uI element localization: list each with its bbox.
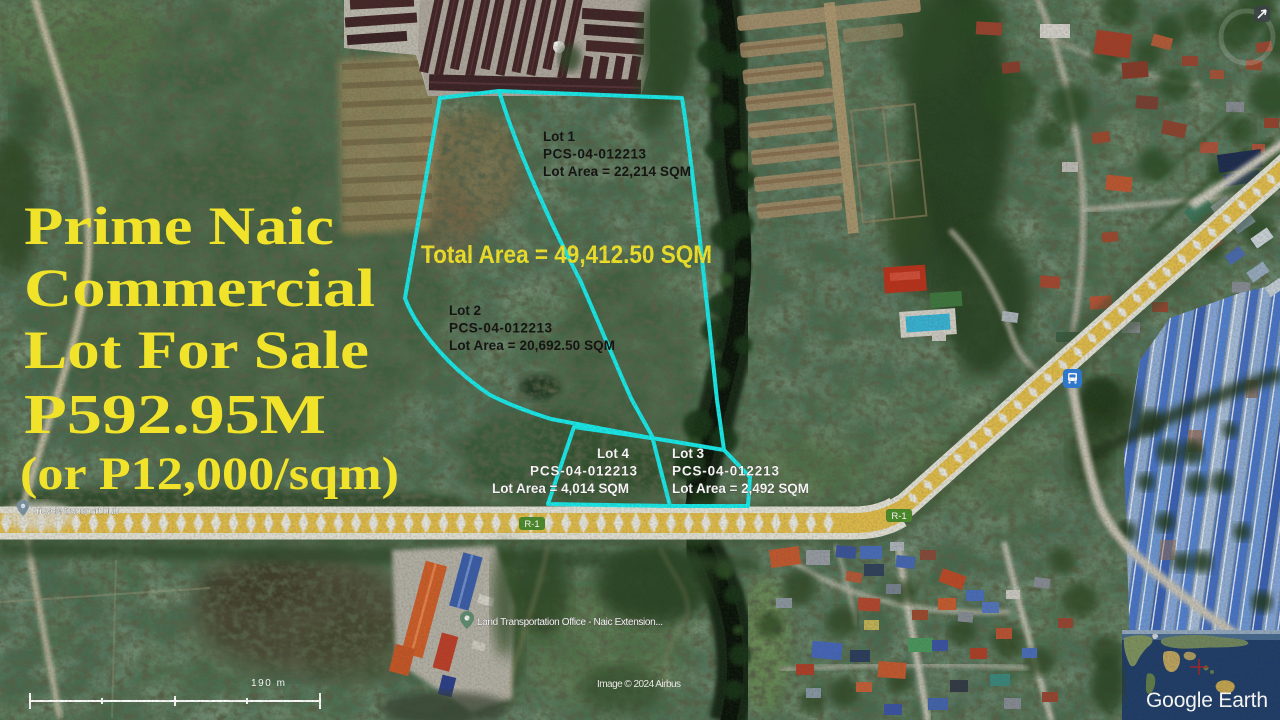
svg-text:Prime Naic: Prime Naic — [24, 196, 334, 256]
svg-text:Lot For Sale: Lot For Sale — [24, 320, 369, 380]
svg-text:P592.95M: P592.95M — [24, 384, 326, 446]
svg-text:(or P12,000/sqm): (or P12,000/sqm) — [20, 448, 399, 500]
svg-text:Commercial: Commercial — [24, 258, 375, 318]
